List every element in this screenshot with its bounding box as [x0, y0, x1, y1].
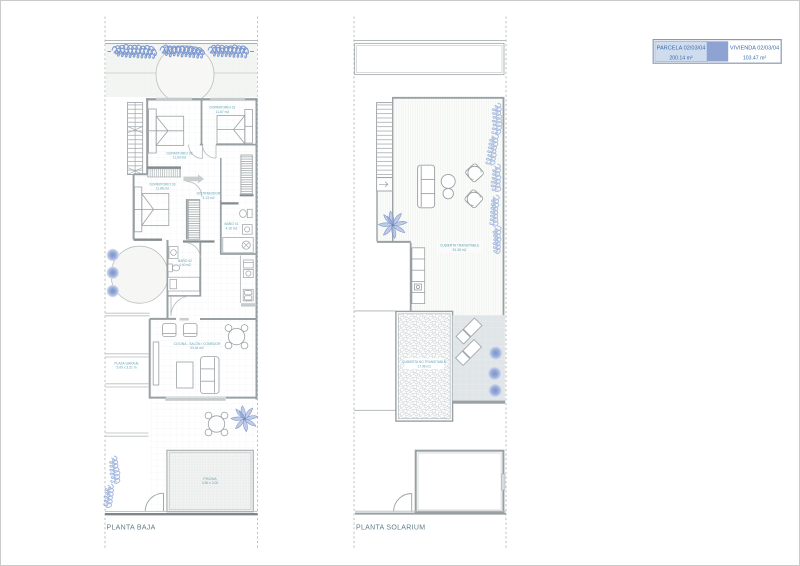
svg-text:11.86 m2: 11.86 m2	[156, 187, 170, 191]
svg-text:4.50 x 2.00: 4.50 x 2.00	[202, 481, 218, 485]
svg-text:11.63 m2: 11.63 m2	[173, 156, 187, 160]
svg-text:33.44 m2: 33.44 m2	[190, 346, 204, 350]
svg-text:200.14 m²: 200.14 m²	[669, 55, 693, 61]
svg-text:4.16 m2: 4.16 m2	[226, 226, 238, 230]
svg-text:17.96 m2: 17.96 m2	[418, 364, 432, 368]
svg-text:PARCELA 02/03/04: PARCELA 02/03/04	[657, 46, 706, 52]
svg-text:51.36 m2: 51.36 m2	[453, 248, 467, 252]
svg-text:VIVIENDA 02/03/04: VIVIENDA 02/03/04	[730, 46, 779, 52]
svg-text:PLANTA SOLARIUM: PLANTA SOLARIUM	[356, 525, 425, 532]
svg-text:BAÑO 02: BAÑO 02	[178, 258, 192, 263]
svg-text:5.00 x 3.21 m: 5.00 x 3.21 m	[117, 366, 137, 370]
svg-text:BAÑO 01: BAÑO 01	[225, 221, 239, 226]
svg-text:103.47 m²: 103.47 m²	[743, 55, 767, 61]
svg-text:4.40 m2: 4.40 m2	[179, 263, 191, 267]
svg-text:COCINA - SALÓN / COMEDOR: COCINA - SALÓN / COMEDOR	[174, 341, 221, 346]
svg-text:11.67 m2: 11.67 m2	[216, 110, 230, 114]
svg-text:PLANTA BAJA: PLANTA BAJA	[107, 525, 156, 532]
svg-text:CUBIERTA NO TRANSITABLE: CUBIERTA NO TRANSITABLE	[402, 360, 446, 364]
svg-text:CUBIERTA TRANSITABLE: CUBIERTA TRANSITABLE	[440, 243, 480, 247]
svg-text:4.13 m2: 4.13 m2	[203, 196, 215, 200]
